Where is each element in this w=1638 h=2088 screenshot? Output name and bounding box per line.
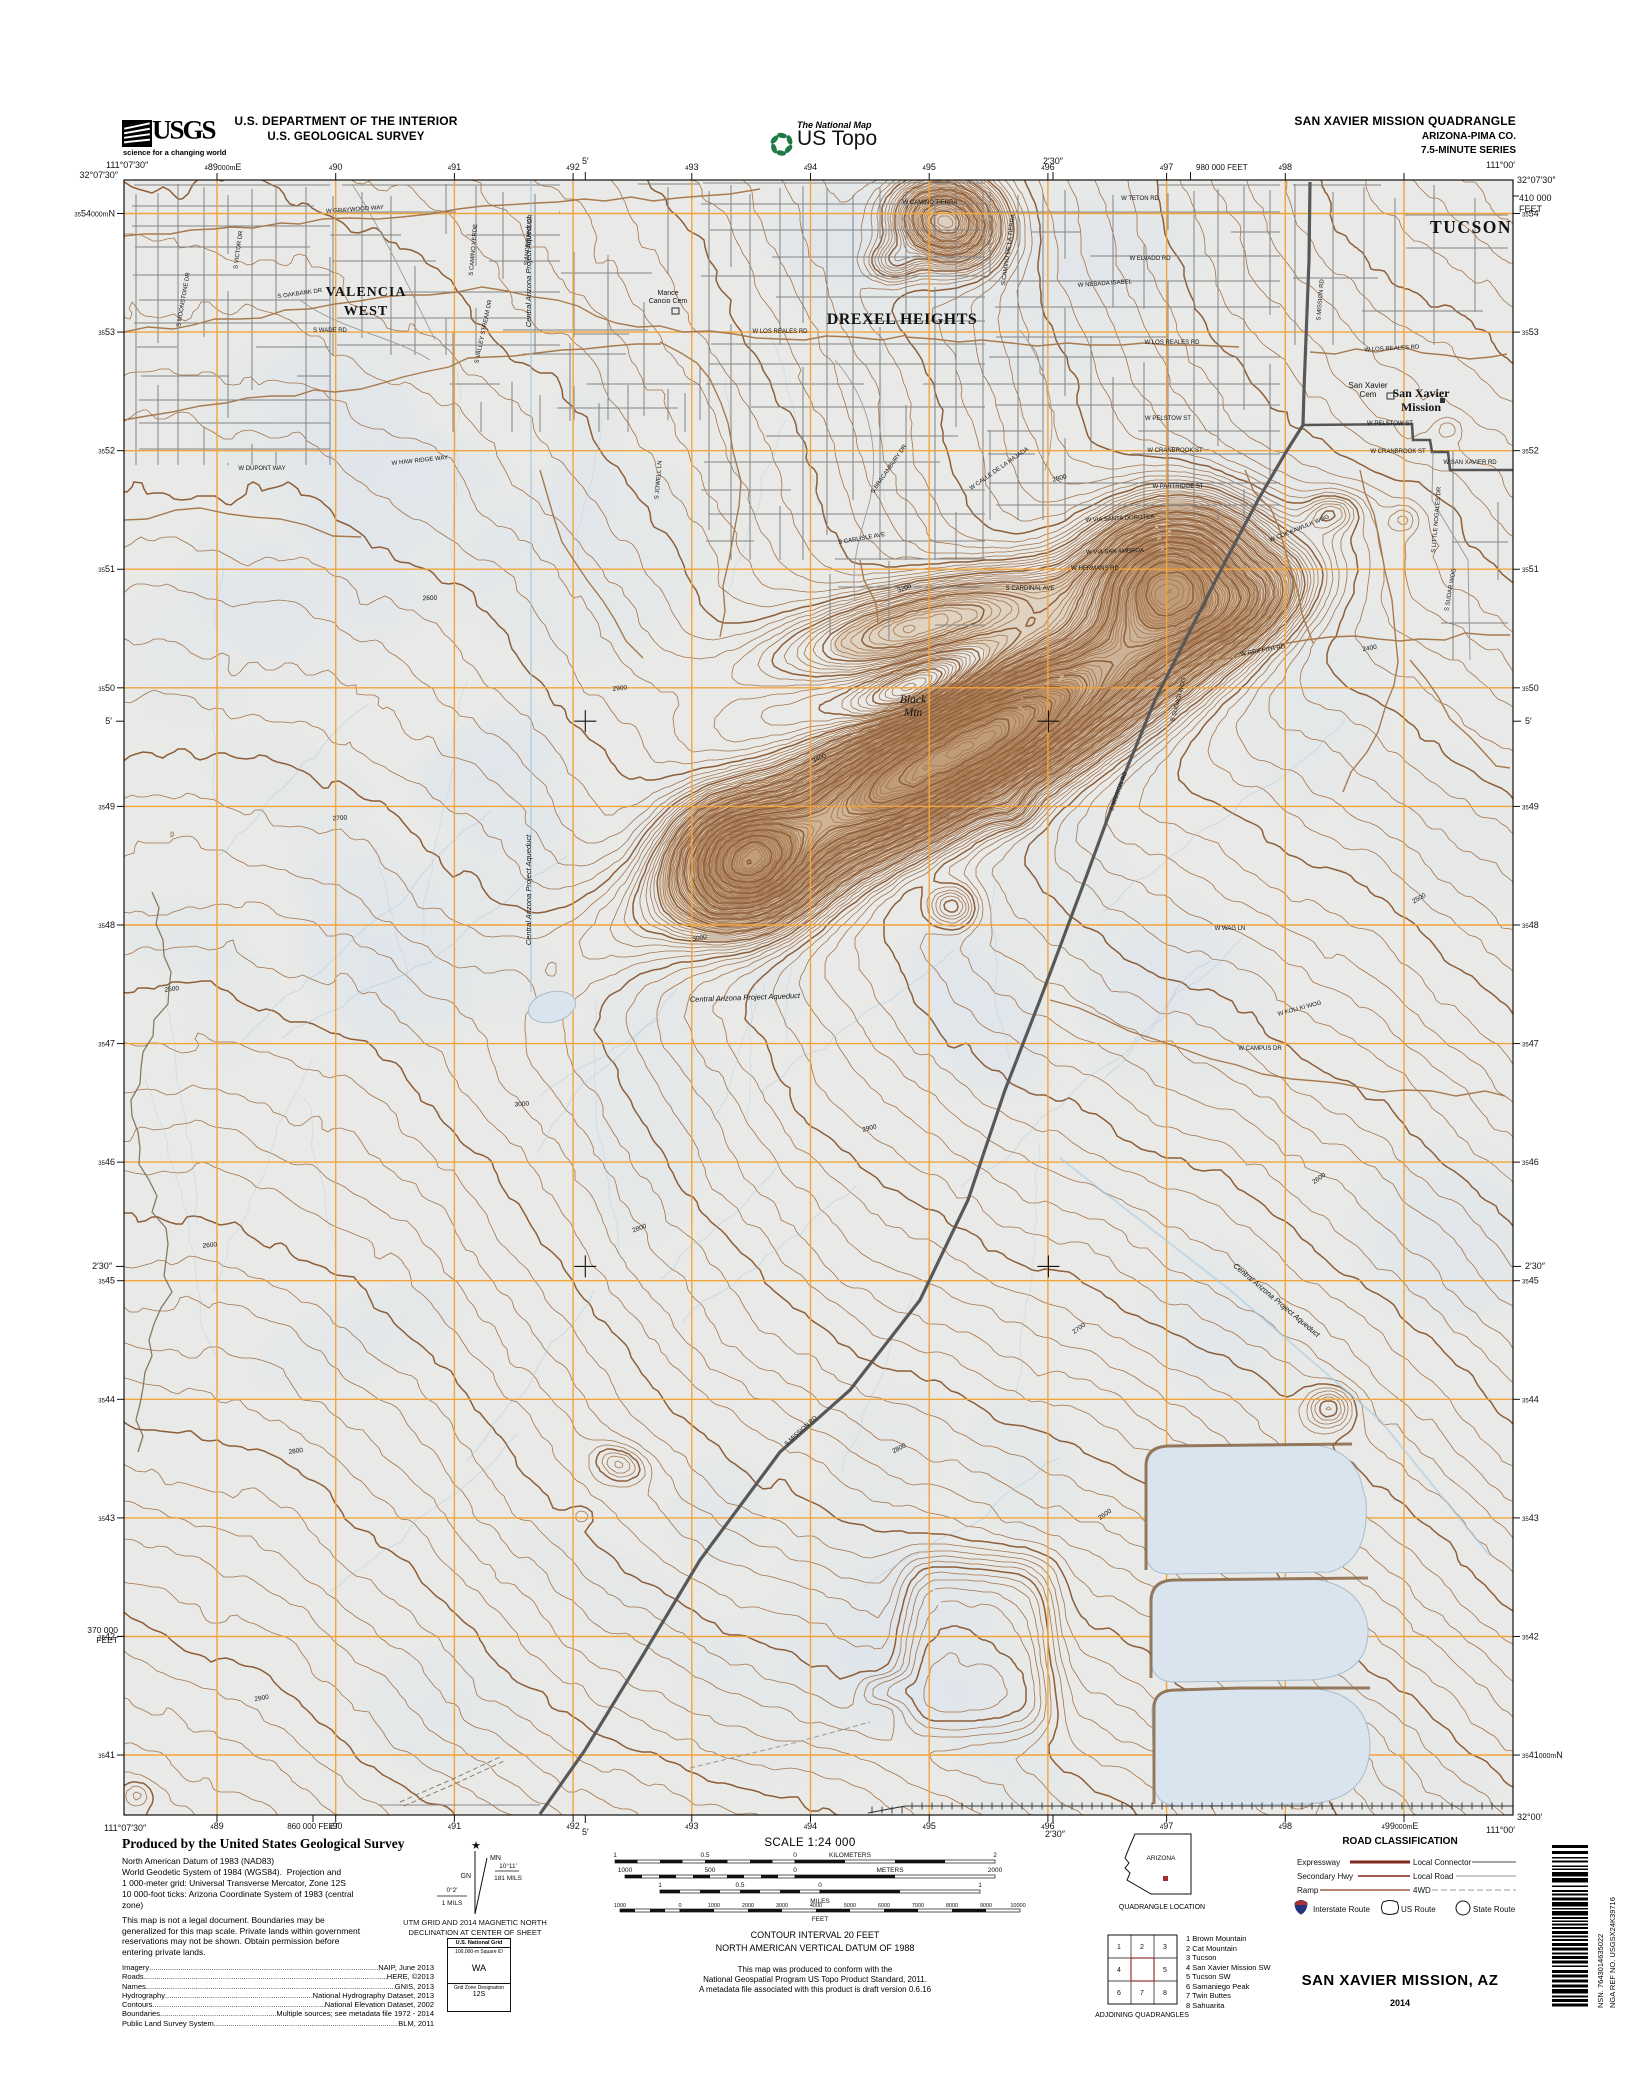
svg-text:491: 491 [448, 162, 461, 172]
svg-text:0.5: 0.5 [700, 1852, 709, 1859]
svg-text:3: 3 [1163, 1944, 1167, 1951]
svg-text:San Xavier: San Xavier [1393, 386, 1451, 400]
svg-text:3544: 3544 [1522, 1394, 1539, 1404]
svg-text:32°07′30″: 32°07′30″ [79, 170, 118, 180]
svg-text:3543: 3543 [1522, 1513, 1539, 1523]
svg-text:WEST: WEST [344, 304, 388, 319]
svg-text:490: 490 [329, 162, 342, 172]
svg-text:1000: 1000 [614, 1903, 626, 1909]
svg-text:498: 498 [1279, 1821, 1292, 1831]
svg-text:0: 0 [678, 1903, 681, 1909]
svg-text:500: 500 [705, 1867, 716, 1874]
svg-text:10°11′: 10°11′ [499, 1862, 518, 1870]
svg-text:3542: 3542 [1522, 1631, 1539, 1641]
svg-text:METERS: METERS [876, 1867, 904, 1874]
svg-text:860 000 FEET: 860 000 FEET [287, 1822, 339, 1831]
svg-text:2: 2 [993, 1852, 997, 1859]
svg-text:111°07′30″: 111°07′30″ [104, 1823, 147, 1833]
svg-text:489: 489 [210, 1821, 223, 1831]
svg-text:Cancio Cem: Cancio Cem [649, 298, 688, 305]
svg-text:10000: 10000 [1010, 1903, 1025, 1909]
svg-text:Local Connector: Local Connector [1413, 1858, 1472, 1867]
svg-text:0: 0 [793, 1867, 797, 1874]
svg-text:5′: 5′ [105, 716, 112, 726]
svg-text:2900: 2900 [612, 684, 627, 692]
svg-text:32°00′: 32°00′ [1517, 1812, 1543, 1822]
svg-text:3549: 3549 [98, 801, 115, 811]
svg-text:W PARTRIDGE ST: W PARTRIDGE ST [1152, 484, 1203, 490]
svg-text:W CRANBROOK ST: W CRANBROOK ST [1147, 448, 1203, 454]
svg-text:5′: 5′ [1525, 716, 1532, 726]
svg-text:Central Arizona Project Aquedu: Central Arizona Project Aqueduct [524, 216, 533, 327]
svg-text:2′30″: 2′30″ [1525, 1261, 1546, 1271]
svg-text:1: 1 [978, 1882, 982, 1889]
svg-text:3547: 3547 [1522, 1039, 1539, 1049]
svg-text:494: 494 [804, 162, 817, 172]
svg-text:5′: 5′ [582, 156, 589, 166]
svg-text:32°07′30″: 32°07′30″ [1517, 175, 1556, 185]
svg-text:S WADE RD: S WADE RD [313, 328, 347, 334]
svg-text:492: 492 [566, 1821, 579, 1831]
svg-text:370 000: 370 000 [87, 1625, 118, 1635]
svg-text:Black: Black [900, 694, 927, 706]
svg-text:3554000mN: 3554000mN [74, 209, 115, 219]
svg-text:3541000mN: 3541000mN [1522, 1750, 1563, 1760]
svg-text:★: ★ [471, 1840, 481, 1852]
svg-text:W PELSTOW ST: W PELSTOW ST [1145, 416, 1191, 422]
svg-text:3545: 3545 [1522, 1276, 1539, 1286]
svg-text:494: 494 [804, 1821, 817, 1831]
svg-text:6: 6 [1117, 1990, 1121, 1997]
svg-text:Cem: Cem [1360, 390, 1377, 399]
svg-text:2600: 2600 [202, 1241, 217, 1249]
svg-text:Mission: Mission [1401, 400, 1441, 414]
svg-text:Interstate Route: Interstate Route [1313, 1905, 1370, 1914]
svg-text:2′30″: 2′30″ [92, 1261, 113, 1271]
svg-text:1: 1 [658, 1882, 662, 1889]
svg-text:1: 1 [1117, 1944, 1121, 1951]
svg-text:FEET: FEET [96, 1635, 118, 1645]
svg-text:4000: 4000 [810, 1903, 822, 1909]
svg-text:Expressway: Expressway [1297, 1858, 1340, 1867]
svg-text:ARIZONA: ARIZONA [1147, 1855, 1177, 1862]
svg-text:181 MILS: 181 MILS [494, 1875, 522, 1882]
svg-text:3545: 3545 [98, 1276, 115, 1286]
svg-text:W CAMINO TIERRA: W CAMINO TIERRA [903, 200, 958, 206]
svg-text:W CAMPUS DR: W CAMPUS DR [1238, 1046, 1282, 1052]
svg-text:8000: 8000 [946, 1903, 958, 1909]
svg-text:DREXEL HEIGHTS: DREXEL HEIGHTS [827, 311, 978, 328]
svg-text:Local Road: Local Road [1413, 1872, 1453, 1881]
svg-text:TUCSON: TUCSON [1430, 217, 1512, 237]
svg-text:Secondary Hwy: Secondary Hwy [1297, 1872, 1353, 1881]
svg-text:3552: 3552 [1522, 446, 1539, 456]
svg-text:1000: 1000 [708, 1903, 720, 1909]
svg-text:2′30″: 2′30″ [1043, 156, 1064, 166]
svg-text:1 MILS: 1 MILS [442, 1900, 463, 1907]
svg-text:MN: MN [490, 1855, 501, 1862]
svg-text:498: 498 [1279, 162, 1292, 172]
svg-text:7: 7 [1140, 1990, 1144, 1997]
svg-text:W LOS REALES RD: W LOS REALES RD [1144, 340, 1200, 346]
svg-text:111°00′: 111°00′ [1486, 1825, 1515, 1835]
svg-text:VALENCIA: VALENCIA [326, 285, 407, 300]
svg-text:3000: 3000 [514, 1100, 529, 1108]
svg-text:6000: 6000 [878, 1903, 890, 1909]
svg-text:0°2′: 0°2′ [446, 1886, 458, 1894]
svg-text:W LOS REALES RD: W LOS REALES RD [752, 329, 808, 335]
svg-text:3551: 3551 [98, 564, 115, 574]
svg-text:W SAN XAVIER RD: W SAN XAVIER RD [1443, 460, 1497, 466]
svg-text:Ramp: Ramp [1297, 1886, 1319, 1895]
svg-text:3544: 3544 [98, 1394, 115, 1404]
svg-text:1: 1 [613, 1852, 617, 1859]
svg-text:493: 493 [685, 162, 698, 172]
svg-text:495: 495 [923, 1821, 936, 1831]
svg-text:3548: 3548 [98, 920, 115, 930]
svg-text:Mtn: Mtn [903, 707, 923, 719]
svg-text:Mance: Mance [657, 290, 678, 297]
svg-text:W HERMANS RD: W HERMANS RD [1071, 566, 1119, 572]
svg-text:410 000: 410 000 [1519, 193, 1552, 203]
svg-text:W WAG LN: W WAG LN [1215, 926, 1246, 932]
svg-text:497: 497 [1160, 162, 1173, 172]
svg-text:492: 492 [566, 162, 579, 172]
svg-text:3553: 3553 [98, 327, 115, 337]
svg-text:3541: 3541 [98, 1750, 115, 1760]
svg-text:111°07′30″: 111°07′30″ [106, 160, 149, 170]
svg-text:111°00′: 111°00′ [1486, 160, 1515, 170]
svg-text:3551: 3551 [1522, 564, 1539, 574]
svg-text:2′30″: 2′30″ [1045, 1829, 1066, 1839]
svg-text:Central Arizona Project Aquedu: Central Arizona Project Aqueduct [524, 834, 533, 945]
svg-text:491: 491 [448, 1821, 461, 1831]
svg-text:W CRANBROOK ST: W CRANBROOK ST [1370, 449, 1426, 455]
svg-text:3553: 3553 [1522, 327, 1539, 337]
svg-text:W TETON RD: W TETON RD [1121, 196, 1159, 202]
svg-text:3552: 3552 [98, 446, 115, 456]
svg-text:0: 0 [793, 1852, 797, 1859]
svg-text:2600: 2600 [423, 595, 438, 603]
svg-text:5′: 5′ [582, 1827, 589, 1837]
svg-text:3000: 3000 [776, 1903, 788, 1909]
svg-text:3550: 3550 [1522, 683, 1539, 693]
svg-text:493: 493 [685, 1821, 698, 1831]
svg-text:5: 5 [1163, 1967, 1167, 1974]
svg-text:980 000 FEET: 980 000 FEET [1196, 163, 1248, 172]
svg-text:State Route: State Route [1473, 1905, 1516, 1914]
svg-text:4: 4 [1117, 1967, 1121, 1974]
svg-text:2700: 2700 [333, 815, 348, 823]
svg-text:KILOMETERS: KILOMETERS [829, 1852, 872, 1859]
svg-text:8: 8 [1163, 1990, 1167, 1997]
svg-text:495: 495 [923, 162, 936, 172]
svg-text:San Xavier: San Xavier [1348, 381, 1387, 390]
svg-text:0: 0 [818, 1882, 822, 1889]
svg-text:3543: 3543 [98, 1513, 115, 1523]
svg-text:3550: 3550 [98, 683, 115, 693]
svg-text:1000: 1000 [618, 1867, 633, 1874]
svg-text:2000: 2000 [742, 1903, 754, 1909]
svg-text:3546: 3546 [98, 1157, 115, 1167]
svg-text:2000: 2000 [988, 1867, 1003, 1874]
svg-text:W PELSTOW ST: W PELSTOW ST [1367, 421, 1413, 427]
svg-text:UTM GRID AND 2014 MAGNETIC NOR: UTM GRID AND 2014 MAGNETIC NORTH [403, 1918, 547, 1927]
svg-text:W DUPONT WAY: W DUPONT WAY [238, 466, 285, 472]
svg-text:5000: 5000 [844, 1903, 856, 1909]
svg-text:DECLINATION AT CENTER OF SHEET: DECLINATION AT CENTER OF SHEET [409, 1928, 542, 1937]
svg-text:7000: 7000 [912, 1903, 924, 1909]
svg-text:2: 2 [1140, 1944, 1144, 1951]
svg-text:9000: 9000 [980, 1903, 992, 1909]
svg-text:3548: 3548 [1522, 920, 1539, 930]
svg-text:3547: 3547 [98, 1039, 115, 1049]
svg-text:499000mE: 499000mE [1382, 1821, 1419, 1831]
svg-text:489000mE: 489000mE [205, 162, 242, 172]
svg-text:W ELVADO RD: W ELVADO RD [1129, 256, 1171, 262]
svg-text:GN: GN [461, 1873, 472, 1880]
svg-text:US Route: US Route [1401, 1905, 1436, 1914]
svg-text:3546: 3546 [1522, 1157, 1539, 1167]
svg-text:0.5: 0.5 [735, 1882, 744, 1889]
svg-text:FEET: FEET [812, 1916, 829, 1922]
svg-text:S CARDINAL AVE: S CARDINAL AVE [1006, 586, 1055, 592]
svg-text:3549: 3549 [1522, 801, 1539, 811]
svg-text:4WD: 4WD [1413, 1886, 1431, 1895]
